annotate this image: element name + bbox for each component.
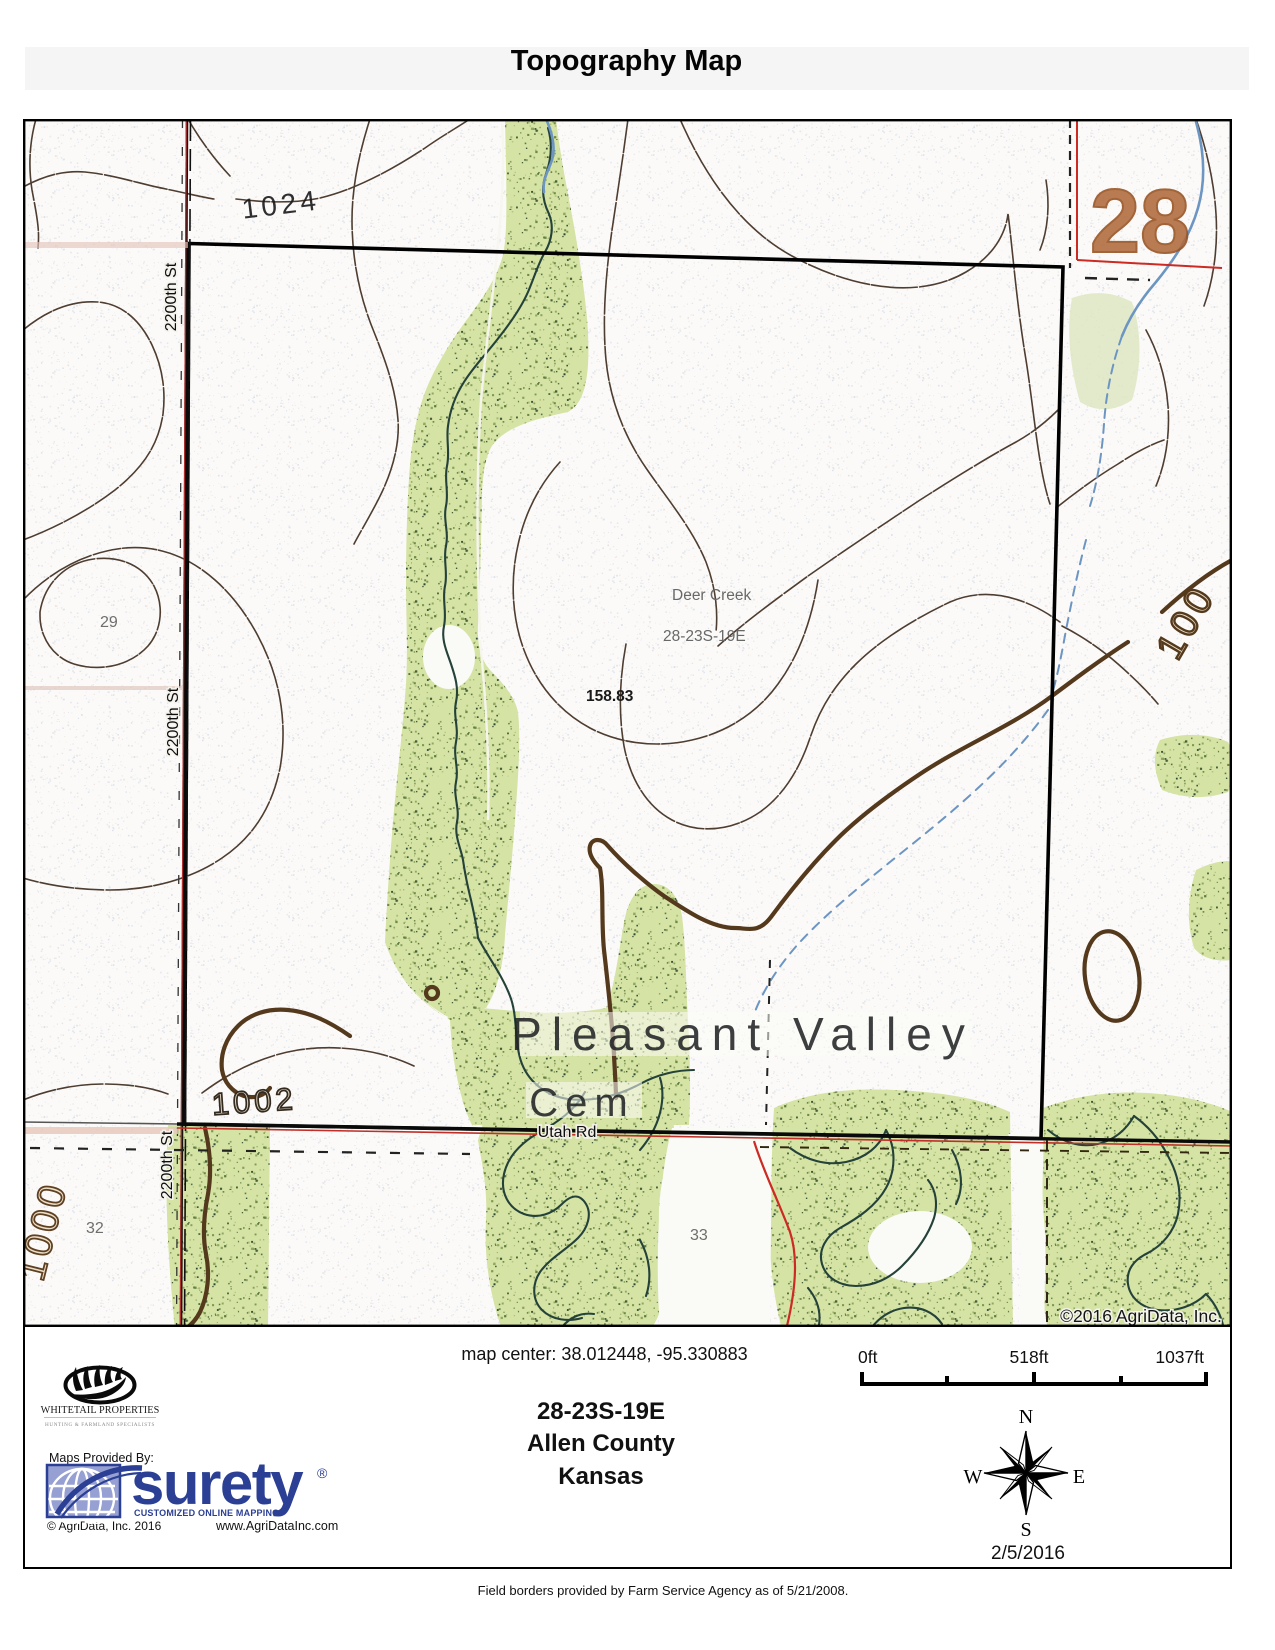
svg-text:33: 33 — [690, 1227, 708, 1244]
svg-text:N: N — [1019, 1406, 1033, 1428]
svg-text:28: 28 — [1090, 172, 1190, 272]
svg-text:29: 29 — [100, 614, 118, 631]
svg-text:Utah Rd: Utah Rd — [538, 1124, 597, 1141]
svg-text:W: W — [964, 1466, 983, 1488]
svg-text:518ft: 518ft — [1010, 1347, 1049, 1367]
svg-text:2200th St: 2200th St — [165, 687, 182, 756]
svg-text:E: E — [1073, 1466, 1085, 1488]
svg-text:1037ft: 1037ft — [1155, 1347, 1204, 1367]
svg-text:Deer Creek: Deer Creek — [672, 587, 751, 604]
svg-text:2200th St: 2200th St — [163, 262, 180, 331]
svg-text:Cem: Cem — [529, 1081, 634, 1125]
svg-text:HUNTING & FARMLAND SPECIALISTS: HUNTING & FARMLAND SPECIALISTS — [45, 1422, 155, 1428]
svg-text:1002: 1002 — [211, 1081, 298, 1122]
svg-text:WHITETAIL PROPERTIES: WHITETAIL PROPERTIES — [41, 1405, 160, 1416]
svg-text:28-23S-19E: 28-23S-19E — [663, 628, 746, 645]
svg-text:Pleasant Valley: Pleasant Valley — [511, 1008, 975, 1060]
svg-text:158.83: 158.83 — [586, 688, 634, 705]
svg-text:0ft: 0ft — [858, 1347, 878, 1367]
svg-text:©2016 AgriData, Inc.: ©2016 AgriData, Inc. — [1060, 1306, 1222, 1326]
svg-text:CUSTOMIZED ONLINE MAPPING: CUSTOMIZED ONLINE MAPPING — [134, 1508, 279, 1518]
svg-text:2200th St: 2200th St — [159, 1130, 176, 1199]
svg-text:32: 32 — [86, 1220, 104, 1237]
svg-text:S: S — [1020, 1519, 1031, 1540]
svg-text:®: ® — [317, 1465, 328, 1481]
